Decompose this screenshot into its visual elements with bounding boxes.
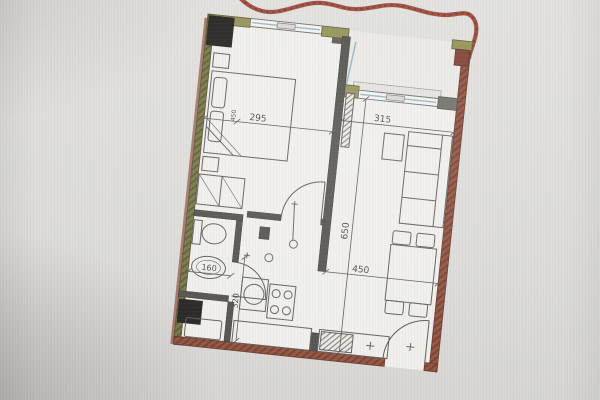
shaft-bottom bbox=[177, 299, 203, 325]
dim-living-depth: 650 bbox=[340, 222, 352, 240]
appliance-hatched bbox=[320, 332, 354, 353]
floor-plan-photo: 295 450 315 650 450 160 320 bbox=[0, 0, 600, 400]
shaft-top bbox=[206, 15, 235, 48]
floor-plan-svg: 295 450 315 650 450 160 320 bbox=[0, 0, 600, 400]
duct-pillar bbox=[259, 227, 270, 240]
corner-block bbox=[437, 97, 457, 111]
dim-living-top-width: 315 bbox=[373, 114, 391, 126]
dim-bedroom-width: 295 bbox=[249, 113, 267, 125]
dim-bedroom-side: 450 bbox=[230, 109, 238, 121]
bottom-exterior-wall-right bbox=[424, 363, 438, 372]
dim-living-width: 450 bbox=[352, 264, 370, 276]
dim-bathroom-width: 160 bbox=[201, 263, 217, 274]
dim-kitchen-depth: 320 bbox=[230, 293, 241, 309]
plan-group: 295 450 315 650 450 160 320 bbox=[170, 14, 472, 372]
